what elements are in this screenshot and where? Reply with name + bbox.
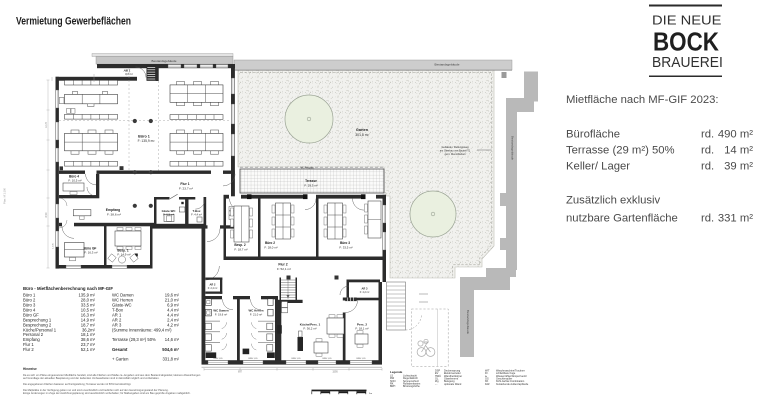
svg-text:rd.: rd. [701,129,714,141]
svg-text:301,8 m²: 301,8 m² [355,133,369,137]
svg-text:WC Herren: WC Herren [249,309,264,313]
svg-text:- -: - - [435,383,438,386]
svg-text:331 m²: 331 m² [718,213,753,225]
svg-text:F: 4,4 m²: F: 4,4 m² [191,213,202,217]
svg-text:BOCK: BOCK [653,27,719,57]
svg-text:14 m²: 14 m² [724,145,753,157]
svg-text:rd.: rd. [701,213,714,225]
svg-text:F: 38,6 m²: F: 38,6 m² [107,212,121,216]
svg-text:5m: 5m [369,393,372,395]
svg-text:331,8 m²: 331,8 m² [162,357,179,362]
svg-text:39 m²: 39 m² [724,161,753,173]
svg-text:Brüstungshöhe: Brüstungshöhe [403,385,420,388]
svg-text:Bestandsgebäude: Bestandsgebäude [511,136,515,161]
svg-text:Terrasse (29,3 m²) 50%: Terrasse (29,3 m²) 50% [112,337,156,342]
svg-text:14,6 m²: 14,6 m² [165,337,180,342]
svg-text:Büro 1: Büro 1 [138,134,150,138]
svg-text:rd.: rd. [701,145,714,157]
svg-text:F: 6,9 m²: F: 6,9 m² [163,213,174,217]
svg-text:12,74: 12,74 [45,121,48,128]
svg-text:F: 19,6 m²: F: 19,6 m² [215,313,227,317]
svg-text:F: 23,7 m²: F: 23,7 m² [179,187,193,191]
svg-text:F: 21,0 m²: F: 21,0 m² [250,313,262,317]
svg-text:F: 33,5 m²: F: 33,5 m² [339,246,352,250]
svg-text:Bestandsgebäude: Bestandsgebäude [152,59,177,63]
svg-text:F: 14,9 m²: F: 14,9 m² [117,253,130,257]
svg-text:504,6 m²: 504,6 m² [162,347,179,352]
svg-text:490 m²: 490 m² [718,129,753,141]
svg-text:F: 18,1 m²: F: 18,1 m² [355,327,368,331]
svg-text:52,1 m²: 52,1 m² [81,347,96,352]
svg-text:AB 1: AB 1 [123,68,131,72]
svg-text:BRH 1,05: BRH 1,05 [248,358,258,360]
svg-text:T-Box: T-Box [192,209,200,213]
svg-text:F: 36,2 m²: F: 36,2 m² [303,327,316,331]
svg-text:F: 10,5 m²: F: 10,5 m² [68,178,81,182]
svg-text:1,135: 1,135 [53,242,55,248]
svg-text:FAZ: FAZ [485,383,490,386]
svg-text:Die angegebenen Flächen basier: Die angegebenen Flächen basieren auf Fer… [23,382,132,386]
svg-text:Bestandsgebäude: Bestandsgebäude [435,62,460,66]
svg-text:+ Garten: + Garten [112,357,129,362]
svg-text:F: 2,4 m²: F: 2,4 m² [208,287,218,290]
svg-text:Gesamt: Gesamt [112,347,128,352]
svg-text:gem. Dienstbarkeit: gem. Dienstbarkeit [445,153,466,156]
svg-text:Flur 1: Flur 1 [180,182,189,186]
svg-text:BRH: BRH [390,385,395,388]
svg-text:697: 697 [238,371,243,374]
svg-text:Hinweise: Hinweise [23,367,37,371]
svg-text:Flur 2: Flur 2 [278,262,287,266]
svg-text:F: 28,0 m²: F: 28,0 m² [264,246,277,250]
svg-text:BRH 1,05: BRH 1,05 [213,358,223,360]
svg-text:1595: 1595 [332,371,338,374]
svg-text:Einige Änderungen im Zuge der: Einige Änderungen im Zuge der Ausführung… [23,391,191,395]
svg-text:freistehende Außenzapfstelle: freistehende Außenzapfstelle [496,383,529,386]
svg-text:Vermietung Gewerbeflächen: Vermietung Gewerbeflächen [16,15,131,27]
svg-text:Bürofläche: Bürofläche [566,129,620,141]
svg-text:Empfang: Empfang [106,208,121,212]
svg-text:Legende: Legende [390,370,403,374]
svg-text:F: 135,9 m²: F: 135,9 m² [138,139,156,143]
svg-text:Büro - Mietflächenberechnung n: Büro - Mietflächenberechnung nach MF-GIF [23,286,113,291]
svg-text:Terrasse (29 m²) 50%: Terrasse (29 m²) 50% [566,145,675,157]
svg-text:F: 18,7 m²: F: 18,7 m² [234,248,247,252]
svg-text:AR 2: AR 2 [210,282,216,286]
svg-text:BRH 1,05: BRH 1,05 [356,358,366,360]
svg-text:BRH 1,05: BRH 1,05 [291,358,301,360]
svg-text:VK Pergola: VK Pergola [300,166,314,170]
svg-text:Flur 2: Flur 2 [23,347,34,352]
svg-text:Terasse: Terasse [305,179,317,183]
svg-text:DIE NEUE: DIE NEUE [652,13,722,28]
svg-text:F: 4,2 m²: F: 4,2 m² [360,291,370,294]
svg-text:Keller/ Lager: Keller/ Lager [566,161,630,173]
svg-text:F: 52,1 m²: F: 52,1 m² [277,267,291,271]
svg-text:AR 3: AR 3 [362,286,368,290]
svg-text:Bestandsgebäude: Bestandsgebäude [466,310,470,335]
svg-text:(Summe Innenräume: 499,4 m²): (Summe Innenräume: 499,4 m²) [112,327,172,332]
svg-text:BRH 1,05: BRH 1,05 [322,358,332,360]
svg-text:optionale Wand: optionale Wand [444,383,462,386]
svg-text:Gäste-WC: Gäste-WC [162,209,177,213]
svg-text:Plan: M 1:100: Plan: M 1:100 [3,187,7,204]
svg-text:WC Damen: WC Damen [213,309,228,313]
svg-text:Garten: Garten [356,128,369,132]
svg-text:Mietfläche nach MF-GIF 2023:: Mietfläche nach MF-GIF 2023: [566,94,719,106]
svg-text:nutzbare Gartenfläche: nutzbare Gartenfläche [566,213,678,225]
svg-text:8,50: 8,50 [45,212,48,217]
svg-text:BRAUEREI: BRAUEREI [652,55,723,71]
svg-text:auf Grundlage der aktuellen Ba: auf Grundlage der aktuellen Bauplanung u… [23,376,160,380]
svg-text:Zusätzlich exklusiv: Zusätzlich exklusiv [566,195,661,207]
svg-text:F: 16,3 m²: F: 16,3 m² [84,251,97,255]
svg-text:rd.: rd. [701,161,714,173]
svg-text:F: 29,3 m²: F: 29,3 m² [304,183,317,187]
